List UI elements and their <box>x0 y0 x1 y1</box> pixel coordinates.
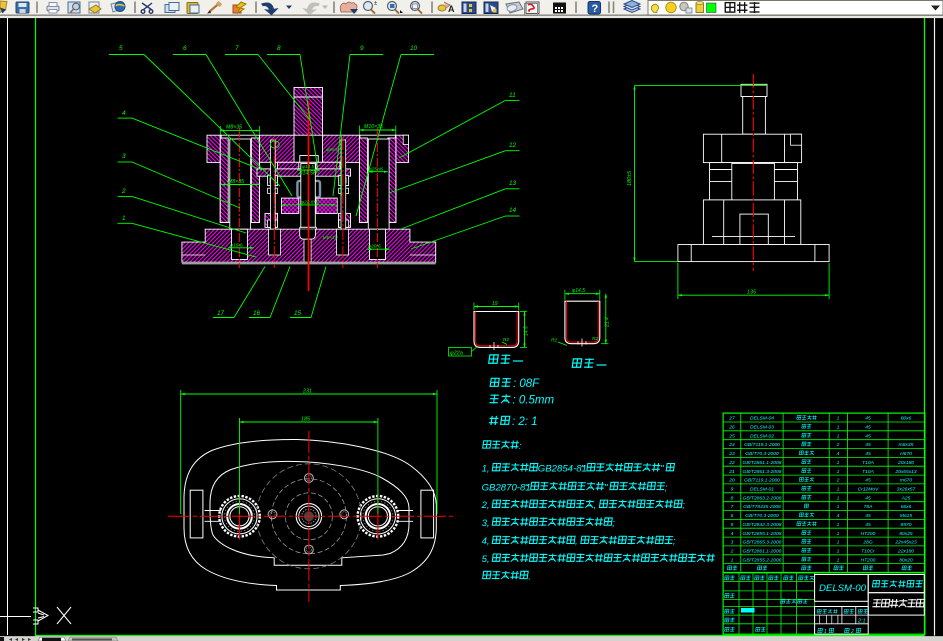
svg-text:1: 1 <box>837 557 840 563</box>
svg-text:4: 4 <box>731 531 734 537</box>
svg-text:1: 1 <box>837 531 840 537</box>
svg-text:8970: 8970 <box>901 522 912 528</box>
svg-text:22x45x23: 22x45x23 <box>894 540 916 546</box>
svg-text:45: 45 <box>865 433 871 439</box>
svg-text:DELSM-04: DELSM-04 <box>750 416 774 422</box>
svg-text:1: 1 <box>122 215 126 222</box>
svg-text:17: 17 <box>217 310 225 317</box>
svg-text:3: 3 <box>731 540 734 546</box>
svg-text:GB2854-81: GB2854-81 <box>538 464 587 475</box>
svg-text:H670: H670 <box>900 451 912 457</box>
svg-text:GB/T119.1-2000: GB/T119.1-2000 <box>744 478 780 484</box>
svg-text:φ14.5H7: φ14.5H7 <box>299 171 321 177</box>
svg-text:m8x35: m8x35 <box>899 442 914 448</box>
svg-text:4: 4 <box>837 513 840 519</box>
svg-text:": " <box>581 464 585 475</box>
svg-text:,: , <box>594 500 597 511</box>
svg-text:M6×20: M6×20 <box>323 235 338 241</box>
svg-text:4: 4 <box>122 110 126 117</box>
svg-text:DELSM-02: DELSM-02 <box>750 433 774 439</box>
svg-text:45: 45 <box>865 416 871 422</box>
svg-text:": " <box>604 482 608 493</box>
svg-text:12: 12 <box>509 142 517 149</box>
svg-text:45: 45 <box>865 478 871 484</box>
svg-text:;: ; <box>612 518 615 529</box>
svg-text:66x6: 66x6 <box>901 504 912 510</box>
svg-text:GB/T2855.2-2008: GB/T2855.2-2008 <box>743 557 782 563</box>
svg-text:22x180: 22x180 <box>897 549 914 555</box>
svg-text:φ20r6: φ20r6 <box>368 244 381 250</box>
svg-text:GB/T2861.1-2008: GB/T2861.1-2008 <box>743 549 782 555</box>
svg-text:1: 1 <box>731 557 734 563</box>
svg-text:A: A <box>448 4 455 14</box>
svg-text:6: 6 <box>183 45 187 52</box>
svg-text:1: 1 <box>837 495 840 501</box>
svg-text:231: 231 <box>302 388 312 394</box>
svg-text:185: 185 <box>301 416 311 422</box>
svg-text:135: 135 <box>747 289 757 295</box>
svg-text:9: 9 <box>731 487 734 493</box>
svg-text:;: ; <box>665 482 668 493</box>
svg-text:φ14.5: φ14.5 <box>302 164 314 169</box>
svg-text:1: 1 <box>837 549 840 555</box>
svg-text:45: 45 <box>865 451 871 457</box>
svg-text:10: 10 <box>410 45 418 52</box>
svg-text:HT200: HT200 <box>861 557 876 563</box>
svg-text:3x26x57: 3x26x57 <box>897 487 916 493</box>
svg-text:24: 24 <box>728 442 735 448</box>
svg-text:;: ; <box>682 500 685 511</box>
svg-text:φ8m6: φ8m6 <box>326 147 339 153</box>
svg-text:21: 21 <box>728 469 735 475</box>
svg-text:180±5: 180±5 <box>627 170 633 186</box>
svg-text:": " <box>660 464 664 475</box>
svg-text:1: 1 <box>837 487 840 493</box>
svg-text:R2: R2 <box>551 338 557 344</box>
svg-text:20: 20 <box>728 478 735 484</box>
svg-text:45: 45 <box>865 495 871 501</box>
svg-text:45: 45 <box>865 442 871 448</box>
svg-text:GB/T2865.3-2008: GB/T2865.3-2008 <box>743 540 782 546</box>
svg-text:5: 5 <box>119 45 123 52</box>
svg-text:1: 1 <box>837 433 840 439</box>
svg-text:T10A: T10A <box>862 460 874 466</box>
svg-text:15: 15 <box>294 310 302 317</box>
svg-text:φ14.5: φ14.5 <box>572 288 585 294</box>
svg-text:φ22a: φ22a <box>450 351 463 357</box>
svg-text:80x6: 80x6 <box>901 416 912 422</box>
svg-text:23: 23 <box>728 451 735 457</box>
svg-text:26: 26 <box>728 425 735 431</box>
svg-text:GB/T70.3-2000: GB/T70.3-2000 <box>745 513 779 519</box>
svg-text:: 08F: : 08F <box>513 378 540 390</box>
svg-text:80x20: 80x20 <box>899 557 913 563</box>
svg-text:T10Cr: T10Cr <box>861 549 875 555</box>
svg-text:5,: 5, <box>482 554 490 565</box>
svg-text:27: 27 <box>728 416 735 422</box>
svg-text:3: 3 <box>122 153 126 160</box>
svg-text:GB/T78435-2008: GB/T78435-2008 <box>743 504 781 510</box>
svg-text:GB/T2855.1-2008: GB/T2855.1-2008 <box>743 531 782 537</box>
svg-text:GB/T119.1-2000: GB/T119.1-2000 <box>744 442 780 448</box>
svg-text:14: 14 <box>509 207 517 214</box>
svg-text::: : <box>519 441 522 452</box>
svg-text:1: 1 <box>837 460 840 466</box>
svg-text:22: 22 <box>728 460 735 466</box>
svg-text:14.5: 14.5 <box>524 326 530 336</box>
svg-text:T8A: T8A <box>864 504 873 510</box>
svg-text:9: 9 <box>360 45 364 52</box>
svg-text:R2: R2 <box>592 336 598 342</box>
svg-text:.: . <box>528 571 531 582</box>
svg-text:HT200: HT200 <box>861 531 876 537</box>
svg-text:20x180: 20x180 <box>897 460 914 466</box>
svg-text:6: 6 <box>731 513 734 519</box>
svg-text:2: 2 <box>730 549 734 555</box>
svg-text:5: 5 <box>731 522 734 528</box>
svg-text:: 2: 1: : 2: 1 <box>512 416 538 428</box>
svg-text:M615: M615 <box>900 513 913 519</box>
svg-text:8: 8 <box>277 45 281 52</box>
svg-text:45: 45 <box>865 522 871 528</box>
svg-text:M8×35: M8×35 <box>228 179 244 185</box>
svg-text:1: 1 <box>824 629 827 635</box>
svg-text:2: 2 <box>836 478 840 484</box>
svg-text:80x25: 80x25 <box>899 531 913 537</box>
svg-text:GB/T2861.1-2008: GB/T2861.1-2008 <box>743 460 782 466</box>
svg-text:": " <box>525 482 529 493</box>
svg-text:4,: 4, <box>482 536 490 547</box>
svg-text:19: 19 <box>492 301 498 307</box>
svg-text:4: 4 <box>837 451 840 457</box>
svg-text:1: 1 <box>837 504 840 510</box>
svg-text:φ22.8H8: φ22.8H8 <box>301 199 320 205</box>
svg-text:7: 7 <box>235 45 239 52</box>
svg-text:16: 16 <box>253 310 261 317</box>
svg-text:1: 1 <box>837 522 840 528</box>
svg-text:28G: 28G <box>862 540 872 546</box>
svg-text:2: 2 <box>850 629 854 635</box>
svg-text:φ25H6: φ25H6 <box>369 166 384 172</box>
svg-text:3,: 3, <box>482 518 490 529</box>
svg-text:GB/T2863.2-2008: GB/T2863.2-2008 <box>743 495 782 501</box>
svg-text:20x65x13: 20x65x13 <box>894 469 916 475</box>
svg-text:T10A: T10A <box>862 469 874 475</box>
svg-text:A25: A25 <box>901 495 911 501</box>
svg-text:45: 45 <box>865 425 871 431</box>
svg-text:DELSM-01: DELSM-01 <box>750 487 774 493</box>
svg-text:2,: 2, <box>481 500 490 511</box>
svg-text:1,: 1, <box>482 464 490 475</box>
svg-text:,: , <box>575 536 578 547</box>
svg-text:GB/T70.3-2000: GB/T70.3-2000 <box>745 451 779 457</box>
svg-text:7: 7 <box>731 504 734 510</box>
svg-text:GB/T2842.3-2008: GB/T2842.3-2008 <box>743 522 782 528</box>
svg-text:25: 25 <box>728 433 735 439</box>
svg-text:M8×35: M8×35 <box>226 125 242 131</box>
svg-text:2: 2 <box>121 188 126 195</box>
svg-text:R2: R2 <box>503 337 509 343</box>
svg-text:8: 8 <box>731 495 734 501</box>
svg-text:2:1: 2:1 <box>857 619 866 625</box>
svg-text:GB2870-81: GB2870-81 <box>482 482 531 493</box>
svg-text:DELSM-03: DELSM-03 <box>750 425 774 431</box>
svg-text:45: 45 <box>865 513 871 519</box>
svg-text:: 0.5mm: : 0.5mm <box>513 395 555 407</box>
svg-text:2: 2 <box>836 442 840 448</box>
svg-text:21.4: 21.4 <box>605 317 611 328</box>
svg-text:Cr12MoV: Cr12MoV <box>858 487 879 493</box>
svg-text:11: 11 <box>509 92 516 99</box>
svg-text:13: 13 <box>509 180 517 187</box>
svg-text:φ16r6: φ16r6 <box>230 242 243 248</box>
svg-text:1: 1 <box>837 416 840 422</box>
svg-text:1: 1 <box>837 425 840 431</box>
svg-text:DELSM-00: DELSM-00 <box>819 583 867 594</box>
svg-text:;: ; <box>673 536 676 547</box>
svg-text:1: 1 <box>837 469 840 475</box>
svg-text:1: 1 <box>837 540 840 546</box>
svg-text:?: ? <box>592 3 599 15</box>
svg-text:m670: m670 <box>900 478 913 484</box>
svg-text:GB/T2861.3-2008: GB/T2861.3-2008 <box>743 469 782 475</box>
